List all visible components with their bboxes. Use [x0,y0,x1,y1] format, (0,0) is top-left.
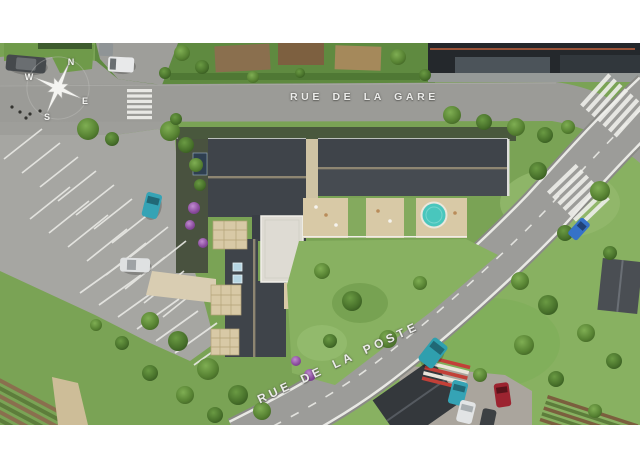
hedge-top-left [38,43,92,49]
aerial-scene: RUE DE LA GARE RUE DE LA POSTE N E S W [0,43,640,425]
compass-west-label: W [25,72,34,82]
skylight [233,263,242,271]
compass-south-label: S [44,112,50,122]
compass-east-label: E [82,96,88,106]
truck-gray-top [99,43,113,56]
existing-house-east [597,258,640,314]
pool [422,203,447,228]
street-label-rue-de-la-gare: RUE DE LA GARE [290,91,439,103]
skylight [233,275,242,283]
compass-north-label: N [68,57,75,67]
site-plan-render: RUE DE LA GARE RUE DE LA POSTE N E S W [0,0,640,470]
